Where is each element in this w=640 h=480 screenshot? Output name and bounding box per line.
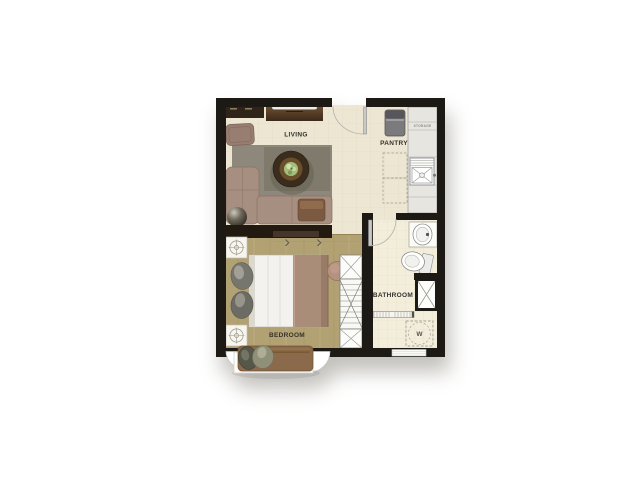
cabinet-handle-icon <box>230 108 237 110</box>
pantry-label: PANTRY <box>380 140 408 147</box>
wardrobe <box>340 255 362 348</box>
media-console-accent <box>273 231 319 237</box>
wall-top-right <box>366 98 445 107</box>
cabinet-handle-icon <box>245 108 252 110</box>
bathroom-sink-icon <box>409 222 437 247</box>
wall-pantry-bathroom <box>396 213 437 220</box>
storage-label: STORAGE <box>414 124 432 128</box>
plant-leaf <box>288 170 292 174</box>
refrigerator-top <box>386 111 405 119</box>
living-label: LIVING <box>284 132 307 139</box>
entry-door-leaf <box>364 107 367 134</box>
kitchen-sink-icon <box>410 158 436 185</box>
bathroom-door-leaf <box>369 220 373 246</box>
nightstand-lamp-icon <box>226 325 247 346</box>
bedroom-label: BEDROOM <box>269 332 305 339</box>
sliding-partition <box>371 312 414 318</box>
bathroom-label: BATHROOM <box>373 292 413 299</box>
plant-center <box>290 167 292 169</box>
wall-top-left <box>216 98 332 107</box>
faucet-icon <box>433 174 436 177</box>
armchair <box>225 123 254 145</box>
nightstand-lamp-icon <box>226 237 247 258</box>
floor-plan: W <box>216 95 448 400</box>
washer-vent-window <box>392 350 426 357</box>
wall-right <box>437 98 445 357</box>
washer-label: W <box>416 331 423 338</box>
wall-left <box>216 98 226 357</box>
bed <box>249 255 328 327</box>
stool-highlight <box>330 264 340 274</box>
service-shaft <box>417 280 437 310</box>
sofa-accent-cushion-top <box>300 201 323 209</box>
decor-sphere <box>227 207 247 227</box>
